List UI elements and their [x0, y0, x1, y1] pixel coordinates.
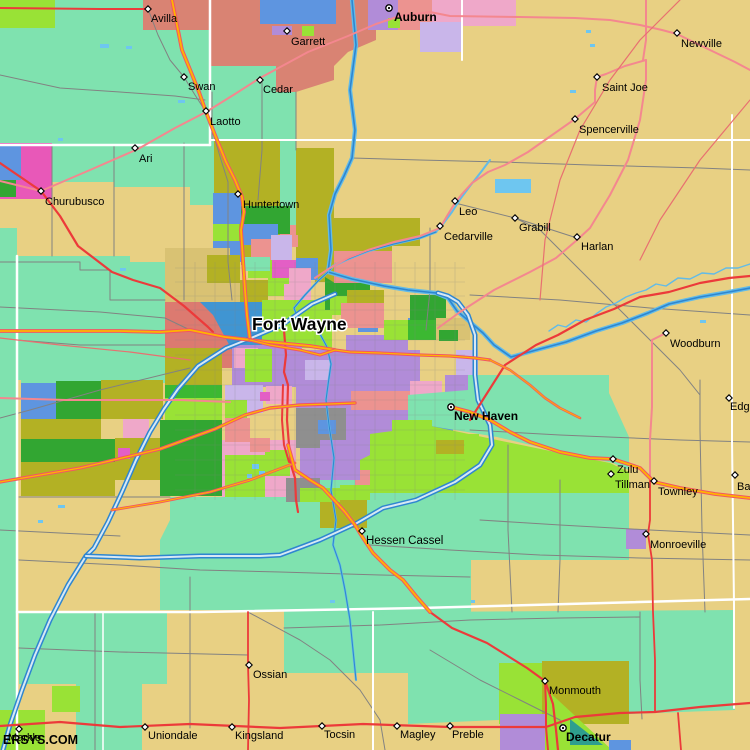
svg-text:Churubusco: Churubusco	[45, 196, 104, 208]
svg-text:Hessen Cassel: Hessen Cassel	[366, 535, 443, 547]
svg-text:Saint Joe: Saint Joe	[602, 82, 648, 94]
svg-text:Decatur: Decatur	[566, 730, 611, 744]
svg-text:ERSYS.COM: ERSYS.COM	[3, 733, 78, 747]
svg-text:Magley: Magley	[400, 729, 436, 741]
svg-text:Ari: Ari	[139, 153, 152, 165]
svg-text:Newville: Newville	[681, 38, 722, 50]
svg-text:Harlan: Harlan	[581, 241, 613, 253]
svg-text:Uniondale: Uniondale	[148, 730, 198, 742]
svg-text:Cedar: Cedar	[263, 84, 293, 96]
svg-text:Spencerville: Spencerville	[579, 124, 639, 136]
svg-text:Leo: Leo	[459, 206, 477, 218]
svg-text:Grabill: Grabill	[519, 222, 551, 234]
svg-text:Cedarville: Cedarville	[444, 231, 493, 243]
svg-text:Woodburn: Woodburn	[670, 338, 721, 350]
svg-text:Swan: Swan	[188, 81, 216, 93]
svg-text:Tillman: Tillman	[615, 479, 650, 491]
svg-text:Edg: Edg	[730, 401, 750, 413]
svg-text:Monroeville: Monroeville	[650, 539, 706, 551]
svg-text:Ossian: Ossian	[253, 669, 287, 681]
svg-text:New Haven: New Haven	[454, 409, 518, 423]
svg-text:Huntertown: Huntertown	[243, 199, 299, 211]
svg-text:Monmouth: Monmouth	[549, 685, 601, 697]
svg-text:Avilla: Avilla	[151, 13, 178, 25]
svg-text:Garrett: Garrett	[291, 36, 325, 48]
svg-text:Preble: Preble	[452, 729, 484, 741]
svg-text:Laotto: Laotto	[210, 116, 241, 128]
svg-text:Townley: Townley	[658, 486, 698, 498]
svg-text:Tocsin: Tocsin	[324, 729, 355, 741]
svg-text:Auburn: Auburn	[394, 10, 437, 24]
svg-text:Zulu: Zulu	[617, 464, 638, 476]
svg-text:Ba: Ba	[737, 481, 750, 493]
svg-text:Kingsland: Kingsland	[235, 730, 283, 742]
svg-text:Fort Wayne: Fort Wayne	[252, 314, 347, 334]
